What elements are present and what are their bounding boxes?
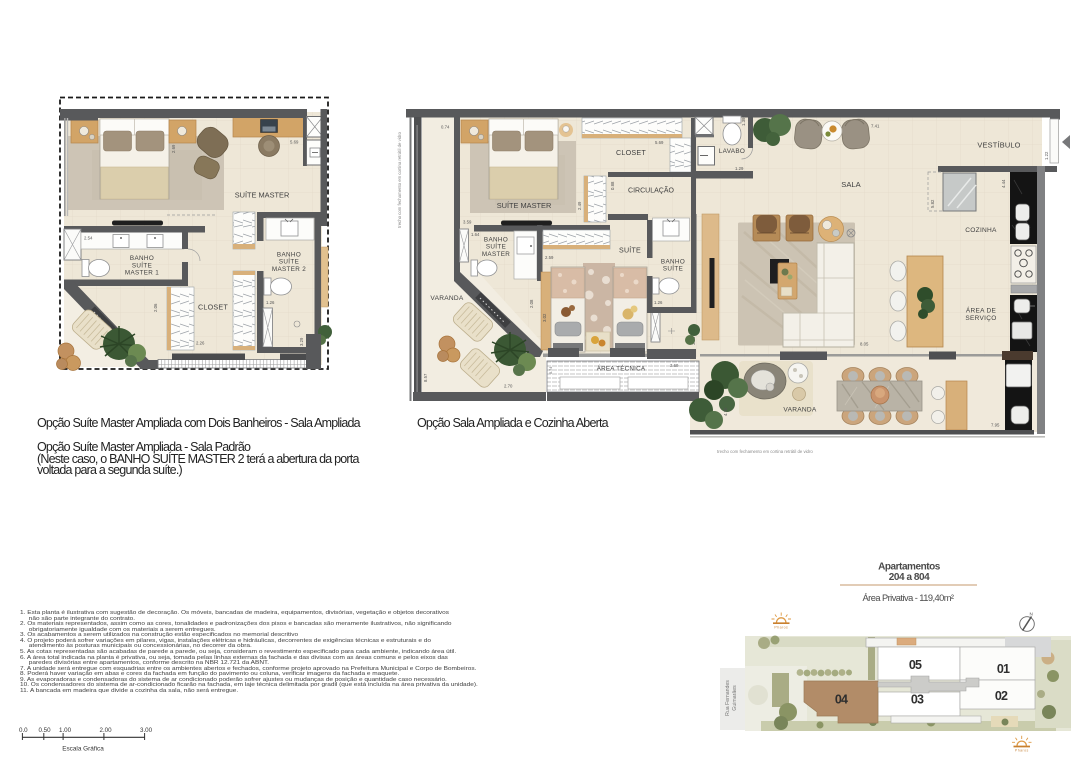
svg-text:BANHO: BANHO: [130, 255, 154, 262]
svg-text:Área Privativa - 119,40m²: Área Privativa - 119,40m²: [863, 593, 954, 603]
svg-text:Guimarães: Guimarães: [732, 685, 738, 711]
svg-text:BANHO: BANHO: [277, 252, 301, 259]
svg-text:SUÍTE MASTER: SUÍTE MASTER: [497, 201, 552, 210]
svg-text:3.59: 3.59: [463, 220, 472, 225]
svg-text:5.69: 5.69: [290, 140, 299, 145]
svg-text:COZINHA: COZINHA: [965, 227, 997, 234]
svg-text:1.26: 1.26: [654, 300, 663, 305]
svg-text:VARANDA: VARANDA: [783, 407, 816, 414]
svg-text:8.05: 8.05: [860, 342, 869, 347]
svg-text:ÁREA DE: ÁREA DE: [966, 306, 997, 315]
svg-text:2.49: 2.49: [577, 201, 582, 210]
svg-text:1.00: 1.00: [59, 727, 72, 734]
svg-text:2.06: 2.06: [153, 303, 158, 312]
svg-text:LAVABO: LAVABO: [719, 148, 745, 155]
svg-text:5.69: 5.69: [655, 140, 664, 145]
svg-text:Rua Fernandes: Rua Fernandes: [725, 680, 731, 716]
svg-text:BANHO: BANHO: [484, 237, 508, 244]
svg-text:SERVIÇO: SERVIÇO: [965, 315, 996, 322]
svg-text:Apartamentos: Apartamentos: [878, 562, 941, 573]
svg-text:7.95: 7.95: [991, 423, 1000, 428]
svg-text:2.69: 2.69: [171, 144, 176, 153]
svg-text:CIRCULAÇÃO: CIRCULAÇÃO: [628, 186, 674, 195]
svg-text:7.41: 7.41: [871, 124, 880, 129]
svg-text:0.88: 0.88: [610, 181, 615, 190]
svg-text:3.69: 3.69: [670, 363, 679, 368]
svg-text:SUÍTE: SUÍTE: [619, 246, 641, 255]
svg-text:VARANDA: VARANDA: [430, 295, 463, 302]
svg-text:1.29: 1.29: [735, 166, 744, 171]
svg-text:SUÍTE: SUÍTE: [279, 257, 299, 266]
svg-text:04: 04: [835, 693, 848, 707]
svg-text:CLOSET: CLOSET: [198, 303, 228, 312]
svg-text:2.08: 2.08: [529, 299, 534, 308]
svg-text:1.22: 1.22: [1044, 151, 1049, 160]
svg-text:MASTER: MASTER: [482, 251, 510, 258]
svg-text:VESTÍBULO: VESTÍBULO: [977, 141, 1020, 150]
svg-text:02: 02: [995, 689, 1008, 703]
svg-text:2.70: 2.70: [504, 384, 513, 389]
svg-text:0.0: 0.0: [19, 727, 28, 734]
svg-text:204 a 804: 204 a 804: [889, 572, 930, 583]
svg-text:0.74: 0.74: [549, 367, 553, 374]
svg-text:2.59: 2.59: [545, 255, 554, 260]
svg-text:01: 01: [997, 662, 1010, 676]
svg-text:SUÍTE: SUÍTE: [663, 264, 683, 273]
svg-text:MASTER 1: MASTER 1: [125, 270, 159, 277]
svg-text:4.70: 4.70: [723, 407, 728, 416]
svg-text:2.00: 2.00: [100, 727, 113, 734]
svg-text:N: N: [1030, 612, 1033, 617]
svg-text:SALA: SALA: [841, 180, 861, 189]
svg-text:SUÍTE: SUÍTE: [486, 242, 506, 251]
svg-text:Pharos: Pharos: [774, 625, 788, 629]
svg-text:3.02: 3.02: [542, 313, 547, 322]
svg-text:3.00: 3.00: [140, 727, 153, 734]
svg-text:SUÍTE MASTER: SUÍTE MASTER: [235, 191, 290, 200]
svg-text:MASTER 2: MASTER 2: [272, 266, 306, 273]
svg-text:Pharos: Pharos: [1015, 749, 1029, 753]
svg-text:8.57: 8.57: [423, 373, 428, 382]
svg-text:05: 05: [909, 658, 922, 672]
svg-text:Escala Gráfica: Escala Gráfica: [62, 746, 104, 753]
svg-text:2.26: 2.26: [196, 341, 205, 346]
svg-text:trecho com fechamento em corti: trecho com fechamento em cortina retráti…: [397, 132, 402, 228]
svg-text:5.82: 5.82: [930, 199, 935, 208]
svg-text:03: 03: [911, 693, 924, 707]
svg-text:0.74: 0.74: [441, 125, 450, 130]
svg-text:CLOSET: CLOSET: [616, 148, 646, 157]
svg-text:3.29: 3.29: [299, 337, 304, 346]
svg-text:1.26: 1.26: [266, 300, 275, 305]
svg-text:BANHO: BANHO: [661, 259, 685, 266]
svg-text:trecho com fechamento em corti: trecho com fechamento em cortina retráti…: [717, 449, 813, 454]
svg-text:ÁREA TÉCNICA: ÁREA TÉCNICA: [597, 364, 646, 373]
svg-text:1.39: 1.39: [741, 117, 746, 126]
svg-text:SUÍTE: SUÍTE: [132, 260, 152, 269]
svg-text:0.50: 0.50: [39, 727, 52, 734]
svg-text:2.54: 2.54: [84, 236, 93, 241]
svg-text:1.64: 1.64: [471, 232, 480, 237]
svg-text:4.44: 4.44: [1001, 179, 1006, 188]
